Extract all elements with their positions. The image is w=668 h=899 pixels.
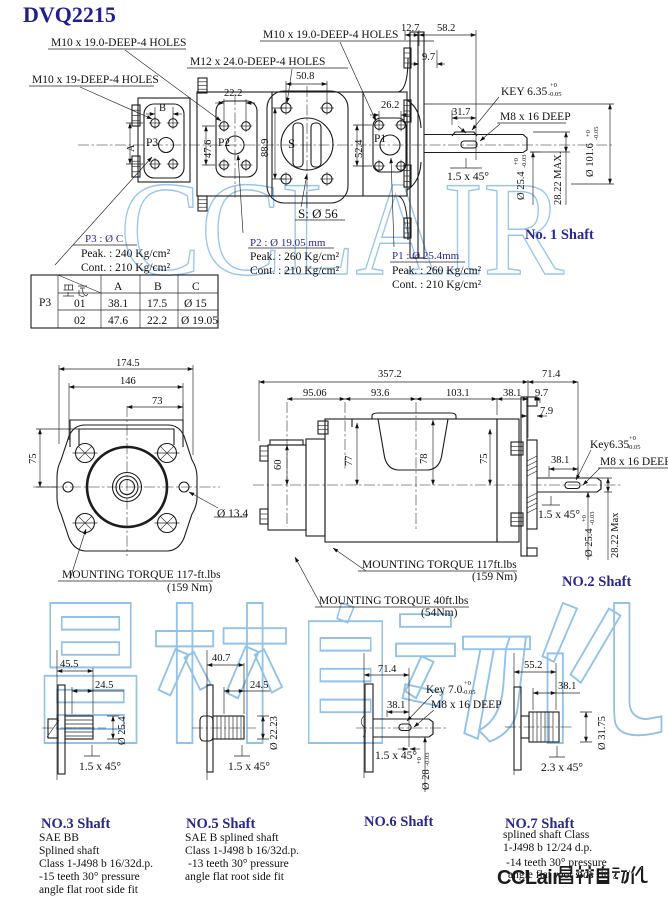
svg-text:M10 x 19.0-DEEP-4 HOLES: M10 x 19.0-DEEP-4 HOLES	[51, 37, 186, 49]
svg-text:P3: P3	[39, 297, 51, 309]
svg-text:Ø 13.4: Ø 13.4	[217, 508, 249, 520]
svg-text:28.22 MAX.: 28.22 MAX.	[553, 152, 564, 205]
svg-text:Class 1-J498 b 16/32d.p.: Class 1-J498 b 16/32d.p.	[39, 858, 153, 870]
svg-text:Ø 25.4: Ø 25.4	[117, 716, 128, 745]
svg-text:60: 60	[273, 460, 284, 471]
svg-text:174.5: 174.5	[116, 358, 140, 369]
svg-text:MOUNTING TORQUE 40ft.lbs: MOUNTING TORQUE 40ft.lbs	[319, 595, 469, 607]
svg-text:-0.03: -0.03	[589, 511, 596, 525]
svg-text:+0: +0	[513, 158, 520, 165]
svg-text:CCLAIR: CCLAIR	[120, 155, 564, 304]
svg-text:P2 : Ø 19.05 mm: P2 : Ø 19.05 mm	[250, 237, 326, 249]
svg-text:Ø 15: Ø 15	[184, 298, 207, 310]
svg-text:52.4: 52.4	[354, 139, 365, 158]
svg-text:1.5 x 45°: 1.5 x 45°	[375, 750, 417, 762]
svg-text:-0.03: -0.03	[521, 154, 528, 168]
svg-text:M8 x 16 DEEP: M8 x 16 DEEP	[500, 111, 571, 123]
svg-text:NO.3 Shaft: NO.3 Shaft	[41, 816, 110, 832]
svg-text:P3 : Ø C: P3 : Ø C	[85, 233, 123, 245]
svg-text:40.7: 40.7	[212, 653, 230, 664]
svg-text:NO.6 Shaft: NO.6 Shaft	[364, 814, 433, 830]
svg-text:357.2: 357.2	[378, 369, 402, 380]
svg-text:Key6.35: Key6.35	[590, 439, 630, 451]
svg-text:Cont. : 210 Kg/cm²: Cont. : 210 Kg/cm²	[81, 262, 171, 274]
svg-text:angle flat root side fit: angle flat root side fit	[185, 871, 285, 883]
svg-text:P1: P1	[374, 133, 386, 145]
svg-text:+0: +0	[550, 82, 557, 89]
svg-text:2.3 x 45°: 2.3 x 45°	[541, 762, 583, 774]
svg-text:38.1: 38.1	[551, 455, 569, 466]
svg-text:Key 7.0: Key 7.0	[426, 684, 463, 696]
svg-text:splined shaft Class: splined shaft Class	[503, 829, 590, 841]
svg-text:+0: +0	[629, 435, 636, 442]
svg-text:Peak. : 260 Kg/cm²: Peak. : 260 Kg/cm²	[392, 265, 482, 277]
svg-text:Cont. : 210 Kg/cm²: Cont. : 210 Kg/cm²	[392, 279, 482, 291]
svg-text:P2: P2	[218, 137, 230, 149]
svg-text:Splined shaft: Splined shaft	[39, 845, 100, 857]
svg-text:Ø 101.6: Ø 101.6	[585, 143, 596, 177]
svg-text:58.2: 58.2	[437, 23, 455, 34]
svg-text:12.7: 12.7	[401, 23, 419, 34]
svg-text:Peak. : 240 Kg/cm²: Peak. : 240 Kg/cm²	[81, 248, 171, 260]
svg-text:1.5 x 45°: 1.5 x 45°	[79, 761, 121, 773]
svg-text:+0: +0	[416, 757, 423, 764]
svg-text:95.06: 95.06	[303, 388, 327, 399]
svg-text:Ø 22.23: Ø 22.23	[269, 716, 280, 750]
svg-text:+0: +0	[585, 130, 592, 137]
svg-text:47.6: 47.6	[203, 140, 214, 158]
svg-text:38.1: 38.1	[387, 700, 405, 711]
svg-text:146: 146	[120, 376, 136, 387]
svg-text:1.5 x 45°: 1.5 x 45°	[228, 761, 270, 773]
svg-text:P3: P3	[146, 137, 158, 149]
svg-text:M10 x 19-DEEP-4 HOLES: M10 x 19-DEEP-4 HOLES	[32, 74, 159, 86]
svg-text:38.1: 38.1	[558, 681, 576, 692]
svg-text:47.6: 47.6	[108, 315, 128, 327]
svg-text:22.2: 22.2	[224, 88, 242, 99]
svg-text:B: B	[159, 103, 166, 114]
svg-text:24.5: 24.5	[95, 680, 113, 691]
svg-text:55.2: 55.2	[524, 660, 542, 671]
svg-text:7.9: 7.9	[540, 406, 553, 417]
svg-text:DVQ2215: DVQ2215	[23, 2, 116, 27]
svg-text:01: 01	[74, 298, 86, 310]
svg-text:SAE BB: SAE BB	[39, 832, 79, 844]
svg-text:02: 02	[74, 315, 86, 327]
svg-text:-0.05: -0.05	[548, 91, 562, 98]
svg-text:28.22 Max: 28.22 Max	[610, 512, 621, 558]
svg-text:A: A	[114, 281, 123, 293]
svg-text:24.5: 24.5	[250, 680, 268, 691]
svg-text:1-J498 b 12/24 d.p.: 1-J498 b 12/24 d.p.	[503, 842, 592, 854]
svg-text:CCLair: CCLair	[497, 867, 560, 889]
svg-text:75: 75	[28, 454, 39, 465]
svg-text:S: Ø 56: S: Ø 56	[298, 206, 338, 221]
svg-text:45.5: 45.5	[60, 659, 78, 670]
svg-text:MOUNTING TORQUE 117ft.lbs: MOUNTING TORQUE 117ft.lbs	[362, 559, 517, 571]
svg-text:P1 : Ø 25.4mm: P1 : Ø 25.4mm	[392, 250, 460, 262]
svg-text:Peak. : 260 Kg/cm²: Peak. : 260 Kg/cm²	[250, 251, 340, 263]
svg-text:M10 x 19.0-DEEP-4 HOLES: M10 x 19.0-DEEP-4 HOLES	[263, 29, 398, 41]
svg-text:(159 Nm): (159 Nm)	[472, 571, 517, 583]
svg-text:26.2: 26.2	[381, 100, 399, 111]
svg-text:9.7: 9.7	[535, 388, 548, 399]
svg-text:1.5 x 45°: 1.5 x 45°	[447, 171, 489, 183]
svg-text:22.2: 22.2	[147, 315, 167, 327]
svg-text:38.1: 38.1	[503, 388, 521, 399]
svg-text:93.6: 93.6	[371, 388, 389, 399]
svg-text:SAE B splined shaft: SAE B splined shaft	[185, 832, 279, 844]
svg-text:Class 1-J498 b 16/32d.p.: Class 1-J498 b 16/32d.p.	[185, 845, 299, 857]
svg-text:+0: +0	[581, 515, 588, 522]
svg-text:S: S	[288, 136, 295, 151]
svg-text:B: B	[154, 281, 162, 293]
svg-text:Ø 19.05: Ø 19.05	[181, 315, 218, 327]
svg-text:Cont. : 210 Kg/cm²: Cont. : 210 Kg/cm²	[250, 265, 340, 277]
svg-text:9.7: 9.7	[422, 52, 435, 63]
svg-text:+0: +0	[464, 680, 471, 687]
svg-text:77: 77	[344, 456, 355, 467]
svg-text:75: 75	[479, 454, 490, 465]
svg-text:-0.05: -0.05	[627, 444, 641, 451]
svg-text:71.4: 71.4	[542, 369, 561, 380]
svg-text:(54Nm): (54Nm)	[421, 607, 458, 619]
svg-text:Ø 25.4: Ø 25.4	[584, 528, 595, 557]
svg-text:NO.2 Shaft: NO.2 Shaft	[562, 574, 631, 590]
svg-text:No. 1 Shaft: No. 1 Shaft	[525, 227, 594, 243]
svg-text:angle flat root side fit: angle flat root side fit	[39, 884, 139, 896]
svg-text:-13 teeth 30° pressure: -13 teeth 30° pressure	[188, 858, 289, 870]
svg-text:Ø 28: Ø 28	[421, 769, 432, 790]
svg-text:1.5 x 45°: 1.5 x 45°	[538, 509, 580, 521]
svg-text:31.7: 31.7	[452, 107, 470, 118]
svg-text:MOUNTING TORQUE 117-ft.lbs: MOUNTING TORQUE 117-ft.lbs	[62, 569, 221, 581]
svg-text:(159 Nm): (159 Nm)	[167, 582, 212, 594]
svg-text:71.4: 71.4	[378, 664, 397, 675]
svg-text:M12 x 24.0-DEEP-4 HOLES: M12 x 24.0-DEEP-4 HOLES	[190, 56, 325, 68]
svg-text:C: C	[192, 281, 200, 293]
svg-text:Ø 31.75: Ø 31.75	[597, 716, 608, 750]
svg-text:17.5: 17.5	[147, 298, 167, 310]
svg-text:103.1: 103.1	[446, 388, 470, 399]
svg-text:M8 x 16 DEEP: M8 x 16 DEEP	[600, 456, 668, 468]
svg-text:-0.05: -0.05	[462, 689, 476, 696]
svg-text:-0.05: -0.05	[593, 126, 600, 140]
svg-text:KEY 6.35: KEY 6.35	[501, 86, 547, 98]
svg-text:78: 78	[419, 454, 430, 465]
svg-text:NO.5 Shaft: NO.5 Shaft	[186, 816, 255, 832]
svg-text:Ø 25.4: Ø 25.4	[516, 171, 527, 200]
svg-text:M8 x 16 DEEP: M8 x 16 DEEP	[431, 699, 502, 711]
svg-text:88.9: 88.9	[260, 139, 271, 157]
svg-text:-15 teeth 30° pressure: -15 teeth 30° pressure	[39, 871, 140, 883]
svg-text:38.1: 38.1	[108, 298, 128, 310]
svg-text:A: A	[126, 144, 137, 152]
svg-text:50.8: 50.8	[296, 71, 314, 82]
svg-text:73: 73	[152, 396, 163, 407]
